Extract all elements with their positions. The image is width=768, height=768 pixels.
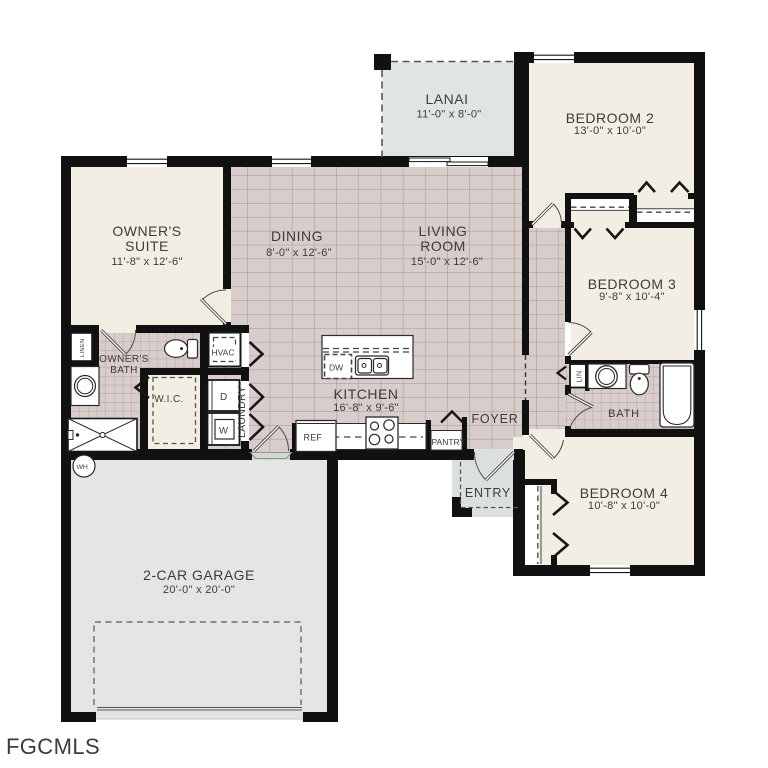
svg-text:LIVING: LIVING [419,223,468,239]
svg-text:BEDROOM 4: BEDROOM 4 [580,485,669,501]
svg-text:2-CAR GARAGE: 2-CAR GARAGE [143,567,255,583]
svg-text:FGCMLS: FGCMLS [6,734,100,759]
svg-text:11'-8" x 12'-6": 11'-8" x 12'-6" [111,256,182,268]
svg-text:BATH: BATH [110,365,138,376]
svg-text:16'-8" x 9'-6": 16'-8" x 9'-6" [333,402,399,414]
svg-text:KITCHEN: KITCHEN [334,386,399,402]
svg-text:LIN: LIN [577,371,584,383]
svg-text:LAUNDRY: LAUNDRY [236,386,248,438]
svg-text:8'-0" x 12'-6": 8'-0" x 12'-6" [266,247,332,259]
svg-text:13'-0" x 10'-0": 13'-0" x 10'-0" [574,125,646,137]
svg-text:LINEN: LINEN [80,338,86,357]
svg-text:W.I.C.: W.I.C. [154,394,184,405]
svg-text:HVAC: HVAC [212,348,235,358]
svg-text:9'-8" x 10'-4": 9'-8" x 10'-4" [599,291,665,303]
svg-text:DINING: DINING [271,228,323,244]
svg-text:ROOM: ROOM [420,238,466,254]
svg-text:OWNER'S: OWNER'S [112,223,181,239]
svg-text:WH: WH [77,464,88,471]
svg-text:BATH: BATH [608,408,640,420]
svg-text:OWNER'S: OWNER'S [99,354,149,365]
svg-text:ENTRY: ENTRY [465,486,511,500]
svg-text:LANAI: LANAI [426,91,469,107]
svg-text:D: D [220,392,227,403]
svg-text:BEDROOM 3: BEDROOM 3 [588,276,677,292]
svg-text:PANTRY: PANTRY [432,437,466,447]
svg-text:11'-0" x 8'-0": 11'-0" x 8'-0" [417,109,482,121]
svg-text:SUITE: SUITE [125,238,169,254]
svg-text:20'-0" x 20'-0": 20'-0" x 20'-0" [163,584,235,596]
svg-text:DW: DW [329,363,343,373]
svg-text:FOYER: FOYER [471,412,518,426]
svg-text:REF: REF [304,433,323,443]
svg-text:BEDROOM 2: BEDROOM 2 [566,110,655,126]
svg-text:15'-0" x 12'-6": 15'-0" x 12'-6" [411,256,483,268]
svg-text:10'-8" x 10'-0": 10'-8" x 10'-0" [588,500,660,512]
svg-text:W: W [219,426,228,437]
